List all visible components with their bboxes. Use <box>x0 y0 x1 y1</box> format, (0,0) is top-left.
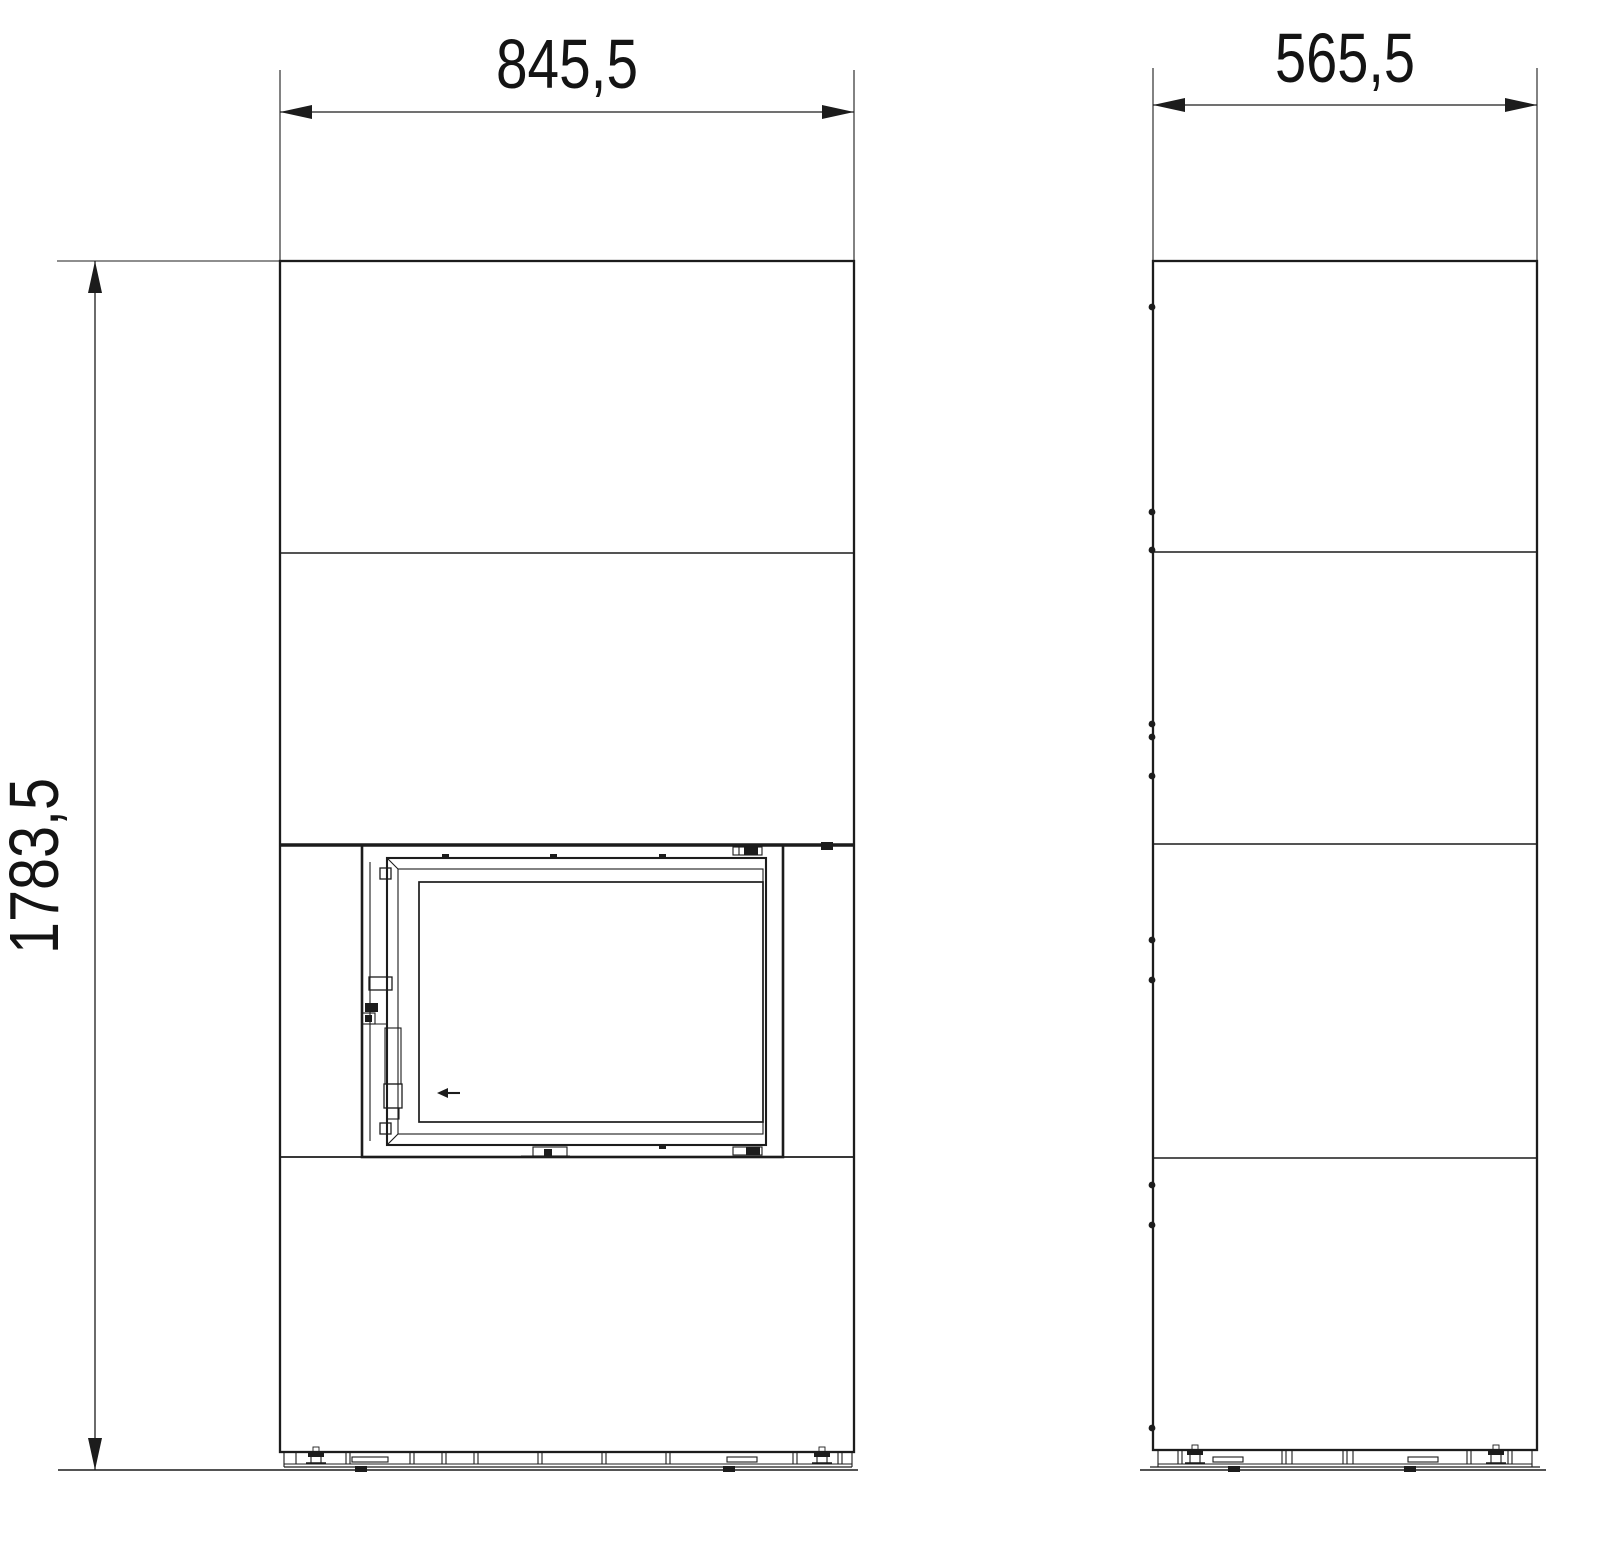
door-nub <box>659 854 666 858</box>
latch-pin <box>544 1149 552 1156</box>
edge-tab <box>1149 734 1156 741</box>
door-nub <box>442 854 449 858</box>
edge-tab <box>1149 773 1156 780</box>
edge-tab <box>1149 1222 1156 1229</box>
dimension-value-height: 1783,5 <box>0 778 73 954</box>
hinge-pin <box>744 847 758 855</box>
joint-marker <box>821 842 833 850</box>
foot-cap <box>1187 1450 1203 1455</box>
foot-cap <box>1488 1450 1504 1455</box>
handle-catch <box>365 1003 378 1012</box>
edge-tab <box>1149 1182 1156 1189</box>
edge-tab <box>1149 721 1156 728</box>
drawing-canvas: 845,5 565,5 1783,5 <box>0 0 1600 1555</box>
edge-tab <box>1149 1425 1156 1432</box>
edge-tab <box>1149 937 1156 944</box>
dimension-value-side-depth: 565,5 <box>1275 19 1415 97</box>
floor-pad <box>355 1466 367 1472</box>
floor-pad <box>723 1466 735 1472</box>
edge-tab <box>1149 977 1156 984</box>
foot-cap <box>308 1452 324 1457</box>
technical-drawing-svg: 845,5 565,5 1783,5 <box>0 0 1600 1555</box>
edge-tab <box>1149 509 1156 516</box>
edge-tab <box>1149 304 1156 311</box>
floor-pad <box>1228 1466 1240 1472</box>
background <box>0 0 1600 1555</box>
floor-pad <box>1404 1466 1416 1472</box>
door-nub <box>550 854 557 858</box>
foot-cap <box>814 1452 830 1457</box>
dimension-value-front-width: 845,5 <box>496 25 638 103</box>
handle-knob <box>365 1015 372 1022</box>
edge-tab <box>1149 547 1156 554</box>
hinge-pin <box>746 1147 760 1155</box>
door-nub <box>659 1145 666 1149</box>
